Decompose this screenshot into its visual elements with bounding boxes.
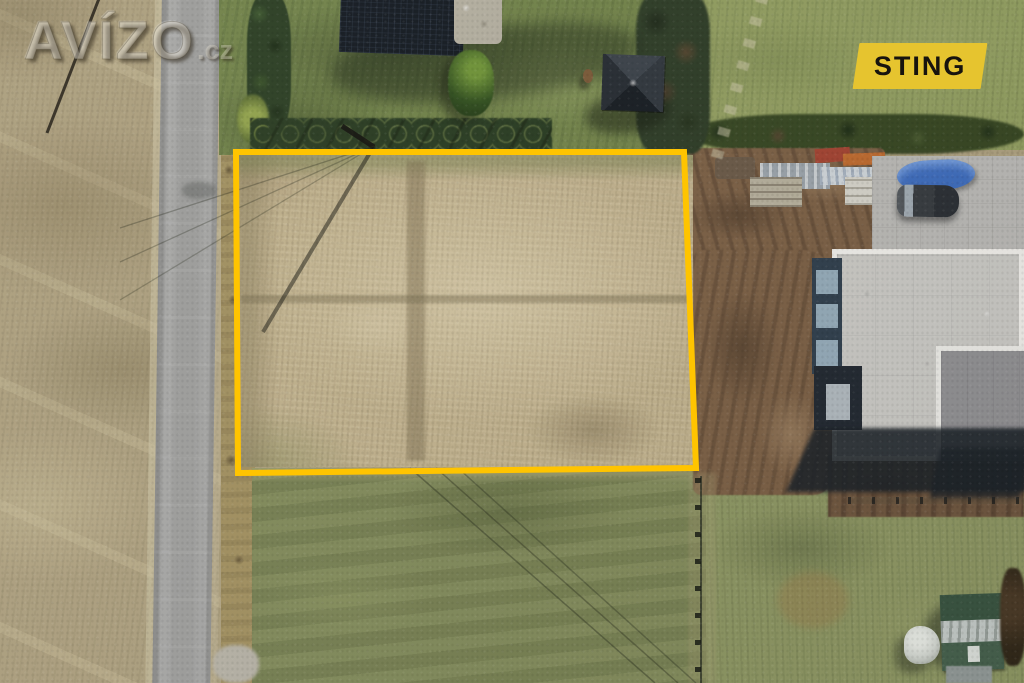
road-dark-patch bbox=[182, 182, 216, 199]
gazebo-roof bbox=[601, 54, 665, 112]
sting-badge-label: STING bbox=[874, 51, 967, 82]
fence-posts bbox=[695, 478, 701, 683]
shed-paving bbox=[946, 666, 992, 683]
sting-watermark-badge: STING bbox=[853, 43, 988, 89]
plot-vertical-track bbox=[407, 161, 425, 461]
dry-grass-patch bbox=[778, 572, 848, 628]
conifer-row bbox=[250, 118, 552, 152]
gravel-patch bbox=[213, 645, 259, 683]
top-house-patio bbox=[454, 0, 502, 44]
house-courtyard bbox=[814, 366, 862, 430]
garden-bush bbox=[448, 50, 494, 116]
parked-car bbox=[897, 184, 960, 217]
fence-worn-strip bbox=[688, 473, 716, 683]
courtyard-paving bbox=[826, 384, 850, 420]
house-side-wall bbox=[812, 258, 842, 374]
plot-horizontal-track bbox=[241, 295, 691, 303]
shed-tarp-band bbox=[941, 619, 1004, 643]
tree-bottom-right bbox=[1000, 568, 1024, 666]
asphalt-road bbox=[152, 0, 220, 683]
construction-edge-fence bbox=[848, 497, 1024, 504]
house-window bbox=[816, 340, 838, 366]
top-house-roof bbox=[339, 0, 465, 56]
house-window bbox=[816, 270, 838, 294]
house-shadow-right bbox=[930, 448, 1024, 498]
shed-window bbox=[967, 646, 980, 662]
lumber-stack bbox=[750, 177, 802, 207]
house-window bbox=[816, 304, 838, 328]
white-bag bbox=[904, 626, 940, 664]
marked-plot-field bbox=[239, 155, 693, 467]
utility-pole-topleft bbox=[47, 0, 100, 133]
small-animal bbox=[583, 69, 593, 83]
aerial-photo: AVÍZO .cz STING bbox=[0, 0, 1024, 683]
bottom-grass-field bbox=[252, 468, 712, 683]
garden-shed bbox=[940, 593, 1005, 671]
